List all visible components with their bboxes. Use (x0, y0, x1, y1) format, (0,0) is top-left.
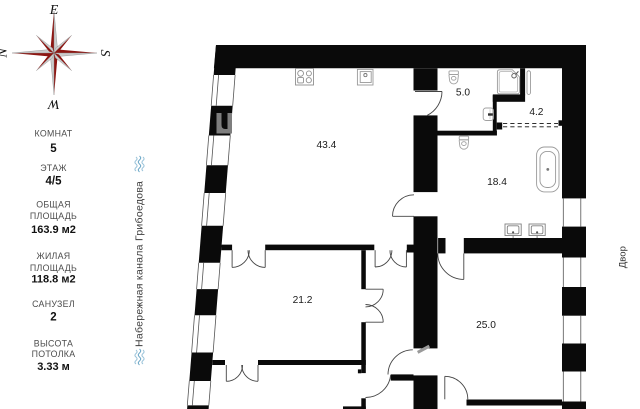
svg-text:ПЛОЩАДЬ: ПЛОЩАДЬ (30, 211, 77, 221)
svg-text:5.0: 5.0 (456, 88, 470, 99)
svg-text:S: S (97, 50, 112, 57)
svg-text:W: W (47, 96, 60, 111)
svg-text:ПЛОЩАДЬ: ПЛОЩАДЬ (30, 263, 77, 273)
svg-text:E: E (49, 3, 59, 18)
svg-text:ПОТОЛКА: ПОТОЛКА (32, 349, 76, 359)
svg-text:ЭТАЖ: ЭТАЖ (40, 163, 67, 173)
svg-text:Набережная канала Грибоедова: Набережная канала Грибоедова (134, 181, 146, 347)
svg-text:4/5: 4/5 (46, 176, 63, 188)
svg-text:ВЫСОТА: ВЫСОТА (34, 339, 73, 349)
svg-text:Двор: Двор (618, 246, 629, 268)
svg-text:5: 5 (50, 143, 57, 155)
svg-text:25.0: 25.0 (476, 320, 496, 331)
svg-text:18.4: 18.4 (487, 177, 507, 188)
svg-text:118.8 м2: 118.8 м2 (31, 274, 75, 286)
svg-text:21.2: 21.2 (293, 295, 313, 306)
svg-text:ЖИЛАЯ: ЖИЛАЯ (37, 251, 71, 261)
svg-text:КОМНАТ: КОМНАТ (35, 129, 73, 139)
svg-text:2: 2 (50, 312, 56, 324)
svg-text:ОБЩАЯ: ОБЩАЯ (36, 200, 71, 210)
svg-text:43.4: 43.4 (316, 140, 336, 151)
svg-text:САНУЗЕЛ: САНУЗЕЛ (32, 299, 75, 309)
svg-text:163.9 м2: 163.9 м2 (31, 224, 76, 236)
svg-text:3.33 м: 3.33 м (37, 361, 70, 373)
svg-text:N: N (0, 48, 11, 59)
svg-text:4.2: 4.2 (529, 107, 543, 118)
